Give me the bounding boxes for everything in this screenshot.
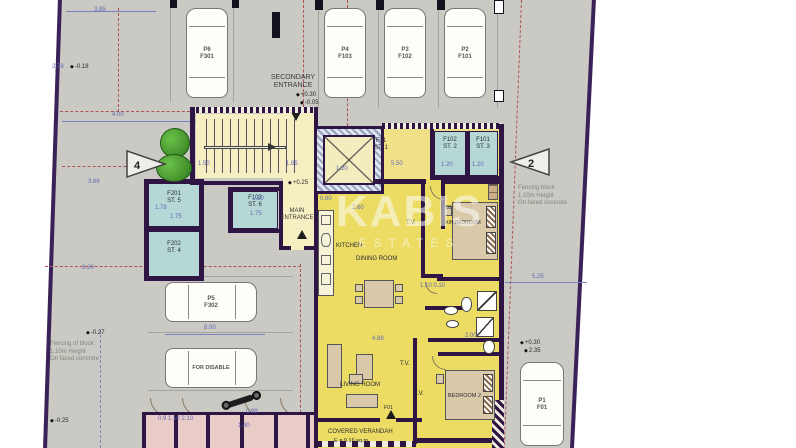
secondary-entrance-label: SECONDARYENTRANCE	[262, 74, 324, 91]
toilet	[461, 297, 472, 312]
furniture	[395, 296, 403, 304]
column	[170, 0, 177, 8]
wall-segment	[413, 438, 503, 443]
wall-segment	[304, 246, 316, 250]
bay-line	[148, 332, 293, 333]
parking-space-p1: P1F01	[520, 362, 564, 446]
dashed-gridline	[303, 0, 304, 112]
wall-segment	[228, 229, 282, 233]
wall-segment	[279, 246, 291, 250]
section-marker-2: 2	[508, 146, 552, 178]
floor-plan: P6F301 P4F103 P3F102 P2F101 P5F302 FOR D…	[0, 0, 796, 448]
main-bedroom-label: MAIN BEDROOM	[441, 221, 481, 227]
wall-segment	[206, 414, 210, 448]
pillow	[486, 206, 496, 228]
section-marker-4: 4	[124, 148, 168, 180]
bedroom2-label: BEDROOM 2	[448, 393, 481, 399]
column	[272, 12, 280, 38]
bay-line	[148, 390, 293, 391]
svg-text:4: 4	[134, 160, 141, 172]
wall-segment	[144, 277, 204, 281]
furniture	[436, 374, 444, 384]
wall-segment	[240, 414, 244, 448]
shower	[476, 317, 494, 337]
wall-segment-hatched	[190, 107, 318, 113]
dimension-line	[62, 121, 202, 122]
dashed-gridline	[100, 330, 101, 448]
bay-line	[170, 4, 171, 102]
shower	[477, 291, 497, 311]
storage-label-f201: F201ST. 5	[148, 191, 200, 205]
wall-segment	[318, 418, 380, 422]
column	[232, 0, 239, 8]
kitchen-label: KITCHEN	[336, 243, 362, 250]
tv-label: T.V.	[414, 391, 424, 398]
wall-segment-hatched	[382, 123, 502, 129]
fencing-note-left: Fencing of block 1.10m Height On faced c…	[50, 341, 99, 364]
column	[376, 0, 384, 10]
bay-line	[438, 4, 439, 108]
sink	[444, 306, 458, 315]
furniture	[355, 296, 363, 304]
toilet	[483, 340, 495, 354]
dimension-line	[66, 11, 156, 12]
wall-segment	[437, 277, 501, 281]
dining-label: DINING ROOM	[356, 256, 397, 263]
pillow	[483, 374, 493, 392]
wall-segment	[396, 418, 422, 422]
tv-label: T.V.	[406, 220, 416, 227]
basement-rooms-strip	[142, 414, 314, 448]
dimension-line	[165, 334, 265, 335]
parking-space-p4: P4F103	[324, 8, 366, 98]
wall-segment	[228, 187, 282, 191]
storage-room-f201	[148, 183, 200, 227]
dining-table	[364, 280, 394, 308]
veranda-label: COVERED VERANDAH	[328, 429, 393, 436]
pillow	[483, 396, 493, 414]
sofa	[346, 394, 378, 408]
column	[494, 90, 504, 102]
dashed-gridline	[118, 8, 119, 112]
stair-direction-arrow	[268, 143, 276, 151]
parking-space-p3: P3F102	[384, 8, 426, 98]
wall-segment	[144, 227, 204, 231]
living-label: LIVING ROOM	[340, 382, 380, 389]
bay-line	[318, 4, 319, 108]
pillow	[486, 232, 496, 254]
wall-segment	[228, 187, 232, 233]
dashed-gridline	[60, 111, 195, 112]
storage-label-f102: F102ST. 2	[434, 137, 466, 151]
dimension-line	[505, 282, 587, 283]
parking-space-disabled: FOR DISABLE	[165, 348, 257, 388]
main-entrance-label: MAINENTRANCE	[272, 208, 322, 222]
column	[494, 0, 504, 14]
wall-segment	[306, 414, 310, 448]
parking-space-p5: P5F302	[165, 282, 257, 322]
closet	[488, 184, 498, 200]
column	[315, 0, 323, 10]
entrance-arrow	[291, 112, 301, 121]
bay-line	[233, 4, 234, 102]
wall-segment	[174, 414, 178, 448]
storage-label-f103: F103ST. 6	[232, 195, 278, 209]
sink	[446, 320, 459, 328]
furniture	[395, 284, 403, 292]
svg-text:2: 2	[528, 158, 534, 170]
parking-space-p2: P2F101	[444, 8, 486, 98]
storage-label-f01: F01ST. 1	[366, 138, 396, 152]
entrance-arrow	[386, 410, 396, 419]
veranda-area-label: E = 9.16 sq.m	[334, 438, 368, 444]
kitchen-counter	[318, 210, 334, 296]
wall-segment	[274, 414, 278, 448]
storage-label-f101: F101ST. 3	[468, 137, 498, 151]
furniture	[355, 284, 363, 292]
storage-label-f202: F202ST. 4	[148, 241, 200, 255]
staircase	[196, 114, 312, 178]
entrance-arrow	[297, 230, 307, 239]
wall-segment	[374, 179, 426, 184]
bay-line	[378, 4, 379, 108]
wall-segment	[190, 107, 195, 185]
wall-segment	[142, 414, 146, 448]
wall-segment	[421, 179, 425, 274]
wall-segment	[314, 107, 318, 129]
column	[437, 0, 445, 10]
fencing-note-right: Fencing block 1.10m Height On faced conc…	[518, 185, 567, 208]
main-bedroom-number: 03	[446, 206, 452, 212]
tv-label: T.V.	[400, 361, 410, 368]
parking-space-p6: P6F301	[186, 8, 228, 98]
